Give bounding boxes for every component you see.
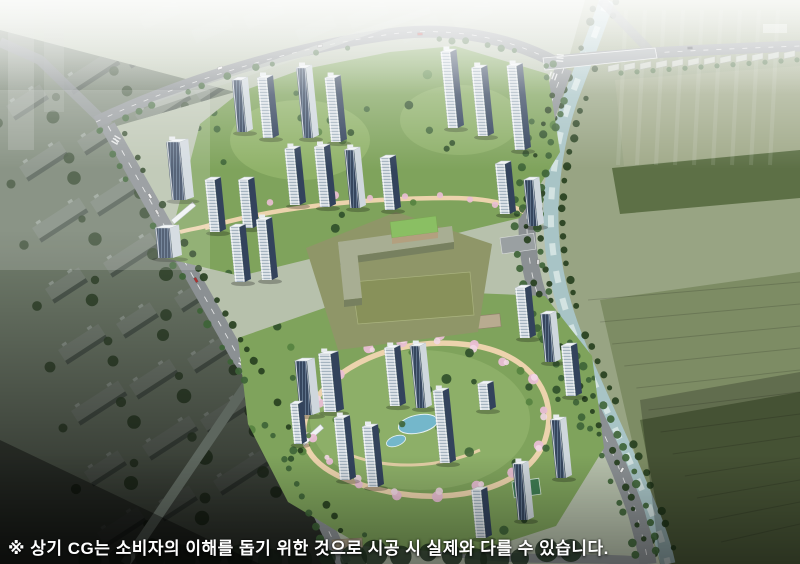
tree	[609, 447, 616, 454]
tree	[524, 236, 531, 243]
tree	[241, 377, 248, 384]
tree	[629, 440, 637, 448]
atmosphere-fog	[0, 0, 800, 95]
aerial-cg-image: ※ 상기 CG는 소비자의 이해를 돕기 위한 것으로 시공 시 실제와 다를 …	[0, 0, 800, 564]
tree	[600, 371, 607, 378]
roof-machine-room	[413, 341, 419, 345]
tree	[561, 247, 568, 254]
tree	[471, 379, 477, 385]
tree	[537, 249, 543, 255]
tree	[607, 415, 615, 423]
tree	[222, 310, 228, 316]
tree	[203, 320, 211, 328]
tree	[465, 349, 474, 358]
tree	[578, 413, 586, 421]
blossom-tree	[540, 407, 548, 415]
roof-machine-room	[436, 386, 442, 390]
tree	[214, 297, 220, 303]
tree	[179, 273, 186, 280]
tree	[559, 220, 565, 226]
tree	[542, 445, 549, 452]
tree	[516, 265, 523, 272]
tree	[410, 199, 417, 206]
tree	[558, 375, 564, 381]
tree	[573, 303, 579, 309]
blossom-tree	[367, 195, 373, 201]
disclaimer-text: ※ 상기 CG는 소비자의 이해를 돕기 위한 것으로 시공 시 실제와 다를 …	[8, 534, 609, 559]
tree	[613, 431, 621, 439]
tree	[612, 397, 619, 404]
tree	[331, 224, 340, 233]
tree	[339, 212, 345, 218]
tree	[286, 424, 292, 430]
tree	[511, 222, 519, 230]
tree	[566, 276, 574, 284]
blossom-tree	[267, 199, 274, 206]
tree	[542, 169, 550, 177]
tree	[514, 251, 521, 258]
roof-machine-room	[259, 215, 265, 219]
roof-machine-room	[321, 349, 327, 353]
tree	[525, 383, 532, 390]
tree	[238, 337, 243, 342]
tree	[526, 398, 533, 405]
tree	[536, 291, 543, 298]
tree	[200, 273, 208, 281]
tree	[306, 433, 311, 438]
tree	[560, 193, 567, 200]
aerial-render-canvas	[0, 0, 800, 564]
tree	[588, 343, 595, 350]
blossom-tree	[531, 374, 538, 381]
blossom-tree	[370, 347, 375, 352]
tree	[274, 398, 282, 406]
tree	[517, 367, 525, 375]
tree	[258, 368, 265, 375]
tree	[197, 308, 203, 314]
tree	[250, 357, 258, 365]
tree	[558, 205, 565, 212]
tree	[555, 397, 560, 402]
blossom-tree	[492, 202, 498, 208]
tree	[219, 345, 225, 351]
blossom-tree	[535, 445, 542, 452]
tree	[595, 358, 601, 364]
tree	[607, 385, 612, 390]
tree	[290, 375, 296, 381]
roof-machine-room	[553, 415, 559, 419]
tree	[586, 377, 592, 383]
tree	[546, 288, 553, 295]
roof-machine-room	[387, 343, 393, 347]
tree	[539, 262, 545, 268]
tree	[590, 409, 595, 414]
tree	[244, 347, 250, 353]
roof-machine-room	[365, 422, 371, 426]
tree	[229, 321, 237, 329]
tree	[227, 359, 233, 365]
tree	[597, 432, 602, 437]
left-haze	[0, 90, 210, 270]
tree	[563, 260, 569, 266]
tree	[570, 290, 575, 295]
tree	[399, 421, 405, 427]
tree	[298, 448, 304, 454]
blossom-tree	[540, 413, 547, 420]
car	[537, 259, 540, 264]
roof-machine-room	[337, 413, 343, 417]
blossom-tree	[467, 197, 473, 203]
tree	[599, 401, 607, 409]
tree	[552, 386, 560, 394]
blossom-tree	[402, 193, 408, 199]
blossom-tree	[437, 192, 443, 198]
tree	[587, 426, 593, 432]
tree	[270, 433, 275, 438]
tree	[235, 367, 242, 374]
tree	[561, 178, 567, 184]
tree	[537, 235, 544, 242]
tree	[573, 399, 579, 405]
tree	[560, 233, 566, 239]
tree	[546, 281, 552, 287]
blossom-tree	[504, 360, 510, 366]
tree	[590, 393, 596, 399]
tree	[287, 344, 294, 351]
tree	[262, 422, 269, 429]
tree	[530, 279, 537, 286]
tree	[619, 443, 627, 451]
tree	[516, 179, 523, 186]
tree	[579, 362, 588, 371]
tree	[577, 422, 585, 430]
tree	[581, 331, 589, 339]
tree	[441, 374, 451, 384]
tree	[596, 422, 602, 428]
blossom-tree	[434, 338, 441, 345]
